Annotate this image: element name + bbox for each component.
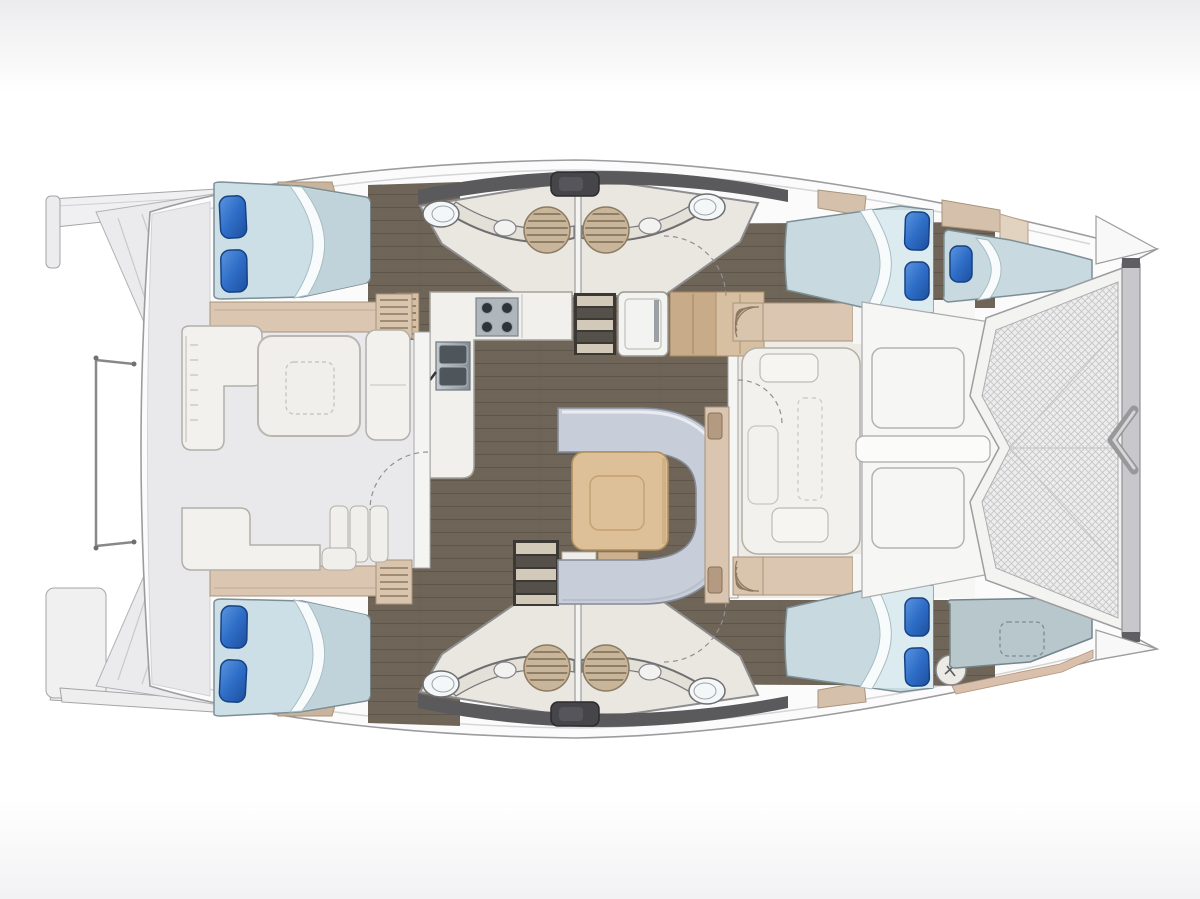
salon-table: [572, 452, 668, 550]
forward-lounge-seat: [742, 348, 860, 554]
swim-platform-bottom: [46, 588, 106, 698]
cabin-aft-port: [214, 182, 370, 299]
pillow: [904, 648, 929, 687]
vent-bottom-left: [376, 560, 412, 604]
toilet-right: [689, 194, 725, 220]
fridge-handle: [654, 300, 659, 342]
pillow: [221, 606, 248, 648]
cabin-aft-starboard: [214, 599, 370, 716]
galley-sink: [430, 342, 470, 390]
shelf-bolster-top: [708, 413, 722, 439]
companionway-steps-top: [574, 293, 616, 355]
forward-cockpit: [742, 348, 860, 554]
shelf-bolster-bottom: [708, 567, 722, 593]
floor-plan-page: [0, 0, 1200, 899]
pillow: [221, 250, 248, 292]
deck-hatch-bottom: [551, 702, 599, 726]
sink-right: [639, 218, 661, 234]
mast-beam: [856, 436, 990, 462]
background-bottom-band: [0, 800, 1200, 899]
sink-left: [494, 220, 516, 236]
pillow: [905, 262, 929, 300]
stern-wing-tip-top: [46, 196, 60, 268]
vent-arcs-bottom-right: [733, 557, 763, 595]
vent-arcs-top-right: [733, 303, 763, 341]
toilet-left: [423, 201, 459, 227]
crossbeam-cap-top: [1122, 258, 1140, 268]
sink-right: [639, 664, 661, 680]
pillow: [905, 598, 929, 636]
pillow: [904, 212, 929, 251]
pillow: [219, 195, 247, 238]
catamaran-floor-plan: [0, 0, 1200, 899]
toilet-left: [423, 671, 459, 697]
bathroom-divider-wall: [575, 602, 581, 714]
bathroom-divider-wall: [575, 184, 581, 296]
toilet-right: [689, 678, 725, 704]
cockpit-table: [258, 336, 360, 436]
sink-left: [494, 662, 516, 678]
deck-hatch-top: [551, 172, 599, 196]
background-top-band: [0, 0, 1200, 95]
pillow: [219, 659, 247, 702]
pillow: [950, 246, 972, 282]
cockpit-steps: [322, 506, 388, 570]
stove: [476, 298, 518, 336]
companionway-steps-bottom: [513, 540, 559, 606]
salon-lounge: [558, 407, 729, 604]
cockpit-salon-wall: [414, 332, 430, 568]
fridge: [618, 292, 668, 356]
